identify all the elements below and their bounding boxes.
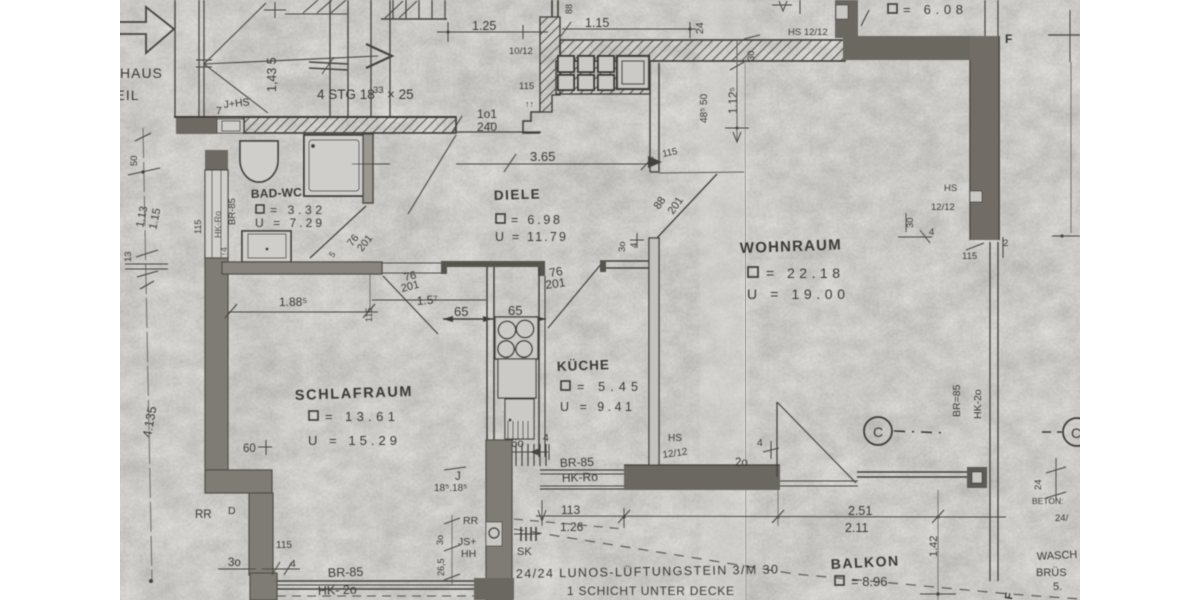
- svg-text:SK: SK: [517, 546, 532, 558]
- svg-text:115: 115: [364, 308, 374, 322]
- svg-text:U = 11.79: U = 11.79: [495, 230, 566, 244]
- svg-text:13: 13: [123, 251, 134, 262]
- svg-text:= 8.96: = 8.96: [851, 574, 888, 589]
- svg-text:HS: HS: [944, 183, 957, 194]
- svg-text:3o: 3o: [435, 535, 445, 545]
- svg-text:WOHNRAUM: WOHNRAUM: [740, 236, 843, 257]
- svg-text:D: D: [228, 505, 236, 517]
- svg-text:2o: 2o: [735, 457, 748, 469]
- svg-text:1o1: 1o1: [477, 107, 497, 121]
- svg-text:201: 201: [544, 275, 566, 292]
- svg-text:4: 4: [543, 432, 549, 444]
- svg-text:2.51: 2.51: [848, 504, 872, 518]
- svg-text:24: 24: [1033, 479, 1044, 490]
- svg-text:1.15: 1.15: [585, 16, 609, 30]
- svg-text:115: 115: [193, 220, 203, 234]
- svg-text:18⁵.18⁵: 18⁵.18⁵: [434, 483, 467, 494]
- svg-text:12/12: 12/12: [931, 202, 955, 213]
- svg-text:115: 115: [962, 251, 977, 262]
- svg-text:4: 4: [629, 243, 640, 248]
- svg-text:7: 7: [216, 105, 222, 117]
- svg-text:U = 15.29: U = 15.29: [308, 433, 397, 448]
- svg-text:33: 33: [373, 85, 384, 96]
- svg-text:30: 30: [905, 217, 916, 228]
- svg-text:↑↑: ↑↑: [525, 99, 534, 109]
- svg-text:C: C: [873, 424, 883, 440]
- svg-text:88: 88: [564, 4, 574, 14]
- svg-text:2.11: 2.11: [845, 521, 868, 535]
- svg-text:115: 115: [276, 540, 292, 551]
- svg-text:3o: 3o: [228, 557, 241, 569]
- svg-text:C: C: [1071, 425, 1081, 441]
- svg-text:113: 113: [561, 503, 580, 517]
- svg-text:4: 4: [757, 437, 763, 449]
- svg-text:24: 24: [694, 22, 706, 34]
- svg-text:5.: 5.: [1053, 581, 1062, 593]
- svg-text:RR: RR: [195, 509, 212, 521]
- svg-text:3o: 3o: [617, 241, 628, 252]
- svg-text:BR-85: BR-85: [227, 198, 238, 225]
- svg-text:F: F: [1005, 32, 1012, 46]
- svg-text:BETON:: BETON:: [1032, 496, 1064, 506]
- svg-text:BR-85: BR-85: [328, 565, 364, 580]
- svg-text:WASCH: WASCH: [1037, 549, 1078, 563]
- svg-text:HK- 2o: HK- 2o: [318, 583, 357, 598]
- svg-text:KÜCHE: KÜCHE: [557, 357, 611, 374]
- svg-text:1.5⁷: 1.5⁷: [416, 293, 438, 308]
- svg-text:4: 4: [929, 227, 934, 238]
- svg-text:BR-85: BR-85: [560, 455, 595, 470]
- svg-text:BRÜS: BRÜS: [1036, 567, 1067, 579]
- svg-text:HK-Ro: HK-Ro: [562, 470, 599, 485]
- svg-text:U = 19.00: U = 19.00: [747, 286, 845, 302]
- svg-text:3.65: 3.65: [530, 149, 555, 164]
- svg-text:HK-2o: HK-2o: [972, 389, 984, 419]
- svg-text:65: 65: [508, 303, 522, 318]
- svg-text:1.25: 1.25: [472, 19, 496, 33]
- svg-text:HS 12/12: HS 12/12: [788, 27, 828, 38]
- svg-text:RR: RR: [463, 515, 479, 527]
- svg-text:1 SCHICHT UNTER DECKE: 1 SCHICHT UNTER DECKE: [567, 584, 734, 598]
- svg-text:DIELE: DIELE: [494, 186, 542, 203]
- svg-text:1.26: 1.26: [560, 520, 584, 534]
- svg-text:JS+: JS+: [458, 536, 476, 548]
- svg-text:× 25: × 25: [387, 87, 414, 102]
- svg-text:24/: 24/: [1055, 513, 1069, 524]
- svg-text:60: 60: [243, 443, 256, 455]
- svg-text:115: 115: [519, 81, 534, 92]
- svg-text:1.88⁵: 1.88⁵: [279, 295, 307, 309]
- svg-text:65: 65: [454, 304, 468, 319]
- svg-text:2: 2: [1003, 238, 1008, 249]
- svg-text:24̄0: 24̄0: [477, 120, 497, 134]
- svg-text:HK-Ro: HK-Ro: [213, 211, 223, 238]
- svg-text:50: 50: [129, 155, 140, 166]
- svg-text:HAUS: HAUS: [120, 65, 163, 81]
- svg-text:J: J: [455, 471, 461, 483]
- svg-text:1.12⁵: 1.12⁵: [728, 87, 740, 114]
- svg-text:1,43 5: 1,43 5: [265, 57, 279, 92]
- svg-text:4 STG 18: 4 STG 18: [317, 87, 375, 102]
- svg-text:BR=85: BR=85: [951, 384, 963, 417]
- svg-text:HH: HH: [461, 548, 476, 560]
- svg-text:48⁵ 50: 48⁵ 50: [699, 93, 710, 123]
- svg-text:HS: HS: [668, 433, 682, 444]
- svg-text:30: 30: [746, 50, 757, 61]
- svg-text:26,5: 26,5: [436, 558, 446, 576]
- svg-text:10/12: 10/12: [509, 46, 533, 57]
- svg-text:BAD-WC: BAD-WC: [251, 185, 303, 201]
